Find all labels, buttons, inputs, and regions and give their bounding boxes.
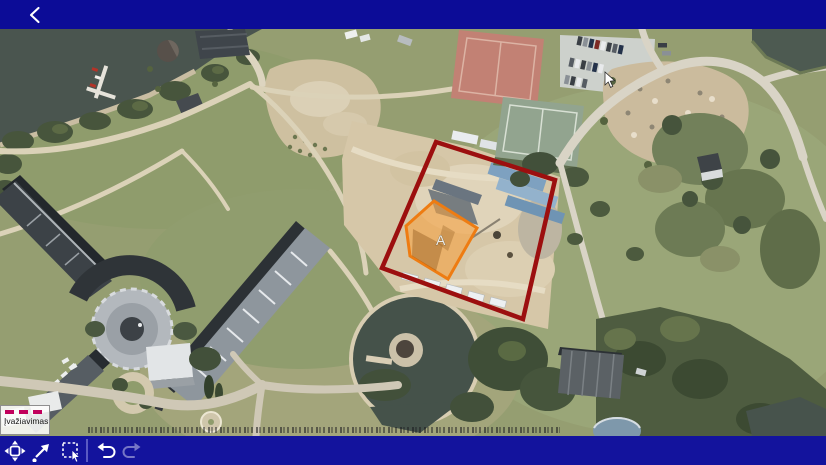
marquee-select-tool-button[interactable] bbox=[58, 438, 84, 464]
map-viewport[interactable]: A Įvažiavimas bbox=[0, 29, 826, 436]
draw-arrow-tool-button[interactable] bbox=[29, 438, 55, 464]
arrow-northeast-icon bbox=[31, 440, 53, 462]
app-window: A Įvažiavimas bbox=[0, 0, 826, 465]
building-a-label: A bbox=[436, 232, 446, 248]
marquee-select-icon bbox=[60, 440, 82, 462]
aerial-photo: A bbox=[0, 29, 826, 436]
bottom-toolbar bbox=[0, 436, 826, 465]
redo-arrow-icon bbox=[120, 440, 142, 462]
map-attribution-strip bbox=[88, 427, 560, 433]
top-bar bbox=[0, 0, 826, 29]
legend-label: Įvažiavimas bbox=[4, 417, 47, 426]
back-chevron-icon bbox=[25, 4, 47, 26]
undo-arrow-icon bbox=[96, 440, 118, 462]
pan-tool-button[interactable] bbox=[2, 438, 28, 464]
legend-box: Įvažiavimas bbox=[0, 405, 50, 435]
redo-button[interactable] bbox=[118, 438, 144, 464]
toolbar-separator bbox=[86, 439, 88, 462]
back-button[interactable] bbox=[24, 3, 48, 27]
dashed-line-swatch bbox=[5, 410, 47, 414]
undo-button[interactable] bbox=[94, 438, 120, 464]
pan-move-icon bbox=[4, 440, 26, 462]
